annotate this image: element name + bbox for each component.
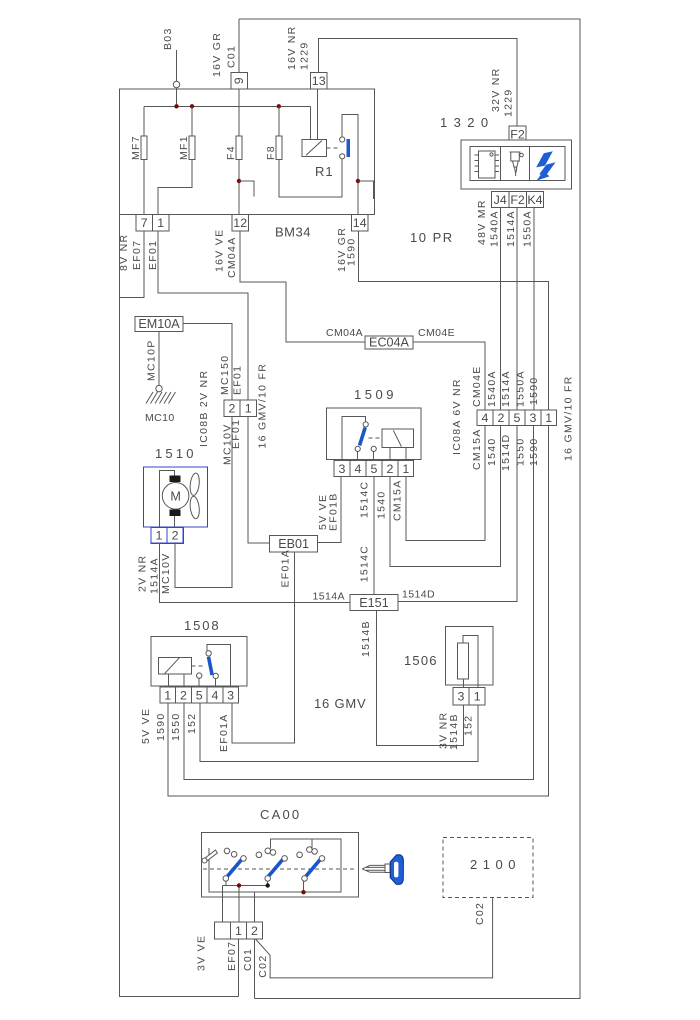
svg-text:16V NR: 16V NR [286, 25, 298, 70]
svg-text:F2: F2 [510, 128, 525, 142]
svg-text:4: 4 [211, 689, 218, 703]
svg-text:1590: 1590 [528, 376, 540, 405]
svg-text:1: 1 [474, 690, 481, 704]
svg-text:16V GR: 16V GR [211, 32, 223, 77]
svg-text:C01: C01 [226, 45, 238, 68]
svg-text:BM34: BM34 [275, 225, 311, 240]
svg-text:1550: 1550 [170, 712, 182, 741]
svg-text:1508: 1508 [184, 618, 221, 633]
svg-text:1514D: 1514D [500, 434, 512, 471]
svg-text:1229: 1229 [503, 88, 515, 117]
svg-text:F8: F8 [265, 145, 277, 160]
svg-text:2: 2 [229, 402, 236, 416]
svg-text:1510: 1510 [155, 446, 197, 461]
svg-text:3: 3 [458, 690, 465, 704]
svg-text:E151: E151 [359, 596, 388, 610]
svg-text:1514D: 1514D [402, 589, 435, 601]
svg-text:F2: F2 [510, 193, 525, 207]
svg-text:EF01A: EF01A [218, 713, 230, 752]
svg-text:14: 14 [353, 216, 367, 230]
svg-text:1514A: 1514A [500, 370, 512, 407]
svg-text:J4: J4 [494, 193, 507, 207]
svg-text:5: 5 [514, 411, 521, 425]
svg-text:MC10: MC10 [145, 412, 175, 424]
svg-text:CM15A: CM15A [391, 479, 403, 521]
svg-text:K4: K4 [527, 193, 542, 207]
svg-text:IC08B 2V NR: IC08B 2V NR [198, 370, 210, 447]
svg-text:3V VE: 3V VE [196, 935, 208, 971]
svg-text:16 GMV/10 FR: 16 GMV/10 FR [257, 363, 269, 449]
svg-text:C02: C02 [257, 955, 269, 978]
svg-text:B03: B03 [162, 27, 174, 50]
svg-text:MC150: MC150 [219, 355, 231, 395]
svg-text:CM04A: CM04A [226, 236, 238, 278]
svg-text:1540: 1540 [486, 437, 498, 466]
svg-text:2: 2 [180, 689, 187, 703]
svg-text:13: 13 [312, 74, 326, 88]
svg-text:1: 1 [156, 529, 163, 543]
svg-text:2100: 2100 [470, 857, 521, 872]
svg-text:2: 2 [387, 462, 394, 476]
svg-text:CM04E: CM04E [471, 365, 483, 407]
svg-text:1: 1 [402, 462, 409, 476]
svg-text:EF01: EF01 [147, 240, 159, 270]
svg-text:1514A: 1514A [313, 591, 345, 603]
svg-text:1550A: 1550A [522, 210, 534, 247]
svg-text:3: 3 [530, 411, 537, 425]
svg-text:CM04E: CM04E [418, 327, 455, 339]
svg-text:1590: 1590 [346, 237, 358, 266]
svg-text:1509: 1509 [354, 387, 397, 402]
svg-text:MC10P: MC10P [146, 339, 158, 381]
svg-text:1: 1 [235, 924, 242, 938]
svg-text:CM04A: CM04A [326, 327, 363, 339]
svg-text:5V VE: 5V VE [140, 708, 152, 744]
svg-text:1540: 1540 [376, 490, 388, 519]
svg-text:1514B: 1514B [448, 713, 460, 750]
svg-text:48V MR: 48V MR [476, 199, 488, 245]
svg-text:12: 12 [233, 216, 247, 230]
svg-text:C01: C01 [242, 948, 254, 971]
svg-text:EF07: EF07 [226, 941, 238, 971]
svg-text:CM15A: CM15A [471, 428, 483, 470]
svg-text:2V NR: 2V NR [137, 555, 149, 592]
svg-text:3: 3 [339, 462, 346, 476]
svg-text:1: 1 [245, 402, 252, 416]
svg-text:EF01A: EF01A [280, 549, 292, 588]
svg-text:1506: 1506 [404, 653, 438, 668]
svg-text:7: 7 [141, 216, 148, 230]
svg-text:EF07: EF07 [131, 240, 143, 270]
svg-text:9: 9 [232, 77, 246, 84]
svg-text:16 GMV/10 FR: 16 GMV/10 FR [563, 375, 575, 461]
svg-text:EC04A: EC04A [369, 336, 410, 350]
svg-text:1514C: 1514C [359, 481, 371, 518]
svg-text:C02: C02 [474, 902, 486, 925]
svg-text:1514A: 1514A [149, 557, 161, 594]
svg-text:2: 2 [498, 411, 505, 425]
svg-text:152: 152 [186, 713, 198, 734]
svg-text:1590: 1590 [155, 712, 167, 741]
svg-text:1: 1 [164, 689, 171, 703]
svg-text:1550A: 1550A [515, 370, 527, 407]
svg-text:F4: F4 [225, 145, 237, 160]
svg-text:CA00: CA00 [260, 807, 301, 822]
svg-text:EF01B: EF01B [328, 492, 340, 531]
svg-text:MF1: MF1 [178, 135, 190, 160]
svg-text:EM10A: EM10A [138, 317, 180, 331]
svg-text:2: 2 [172, 529, 179, 543]
svg-text:152: 152 [463, 715, 475, 736]
svg-text:1514C: 1514C [359, 545, 371, 582]
svg-text:16V VE: 16V VE [214, 229, 226, 272]
svg-text:1540A: 1540A [489, 210, 501, 247]
svg-text:5: 5 [371, 462, 378, 476]
svg-text:M: M [170, 489, 181, 503]
svg-text:5: 5 [196, 689, 203, 703]
svg-text:1514B: 1514B [360, 620, 372, 657]
svg-text:2: 2 [251, 924, 258, 938]
svg-text:EF01: EF01 [232, 365, 244, 395]
svg-text:IC08A 6V NR: IC08A 6V NR [451, 378, 463, 455]
svg-text:R1: R1 [315, 164, 334, 179]
svg-text:1320: 1320 [440, 115, 495, 130]
svg-text:MF7: MF7 [130, 135, 142, 160]
svg-text:8V NR: 8V NR [118, 234, 130, 271]
svg-text:MC10V: MC10V [160, 552, 172, 594]
svg-text:4: 4 [482, 411, 489, 425]
svg-text:1229: 1229 [299, 41, 311, 70]
svg-text:1: 1 [157, 216, 164, 230]
svg-text:32V NR: 32V NR [490, 67, 502, 112]
svg-text:16 GMV: 16 GMV [314, 696, 366, 711]
svg-text:3: 3 [227, 689, 234, 703]
svg-text:1514A: 1514A [505, 210, 517, 247]
svg-text:4: 4 [355, 462, 362, 476]
svg-text:1: 1 [545, 411, 552, 425]
svg-text:10 PR: 10 PR [410, 230, 454, 245]
svg-text:1540A: 1540A [486, 370, 498, 407]
